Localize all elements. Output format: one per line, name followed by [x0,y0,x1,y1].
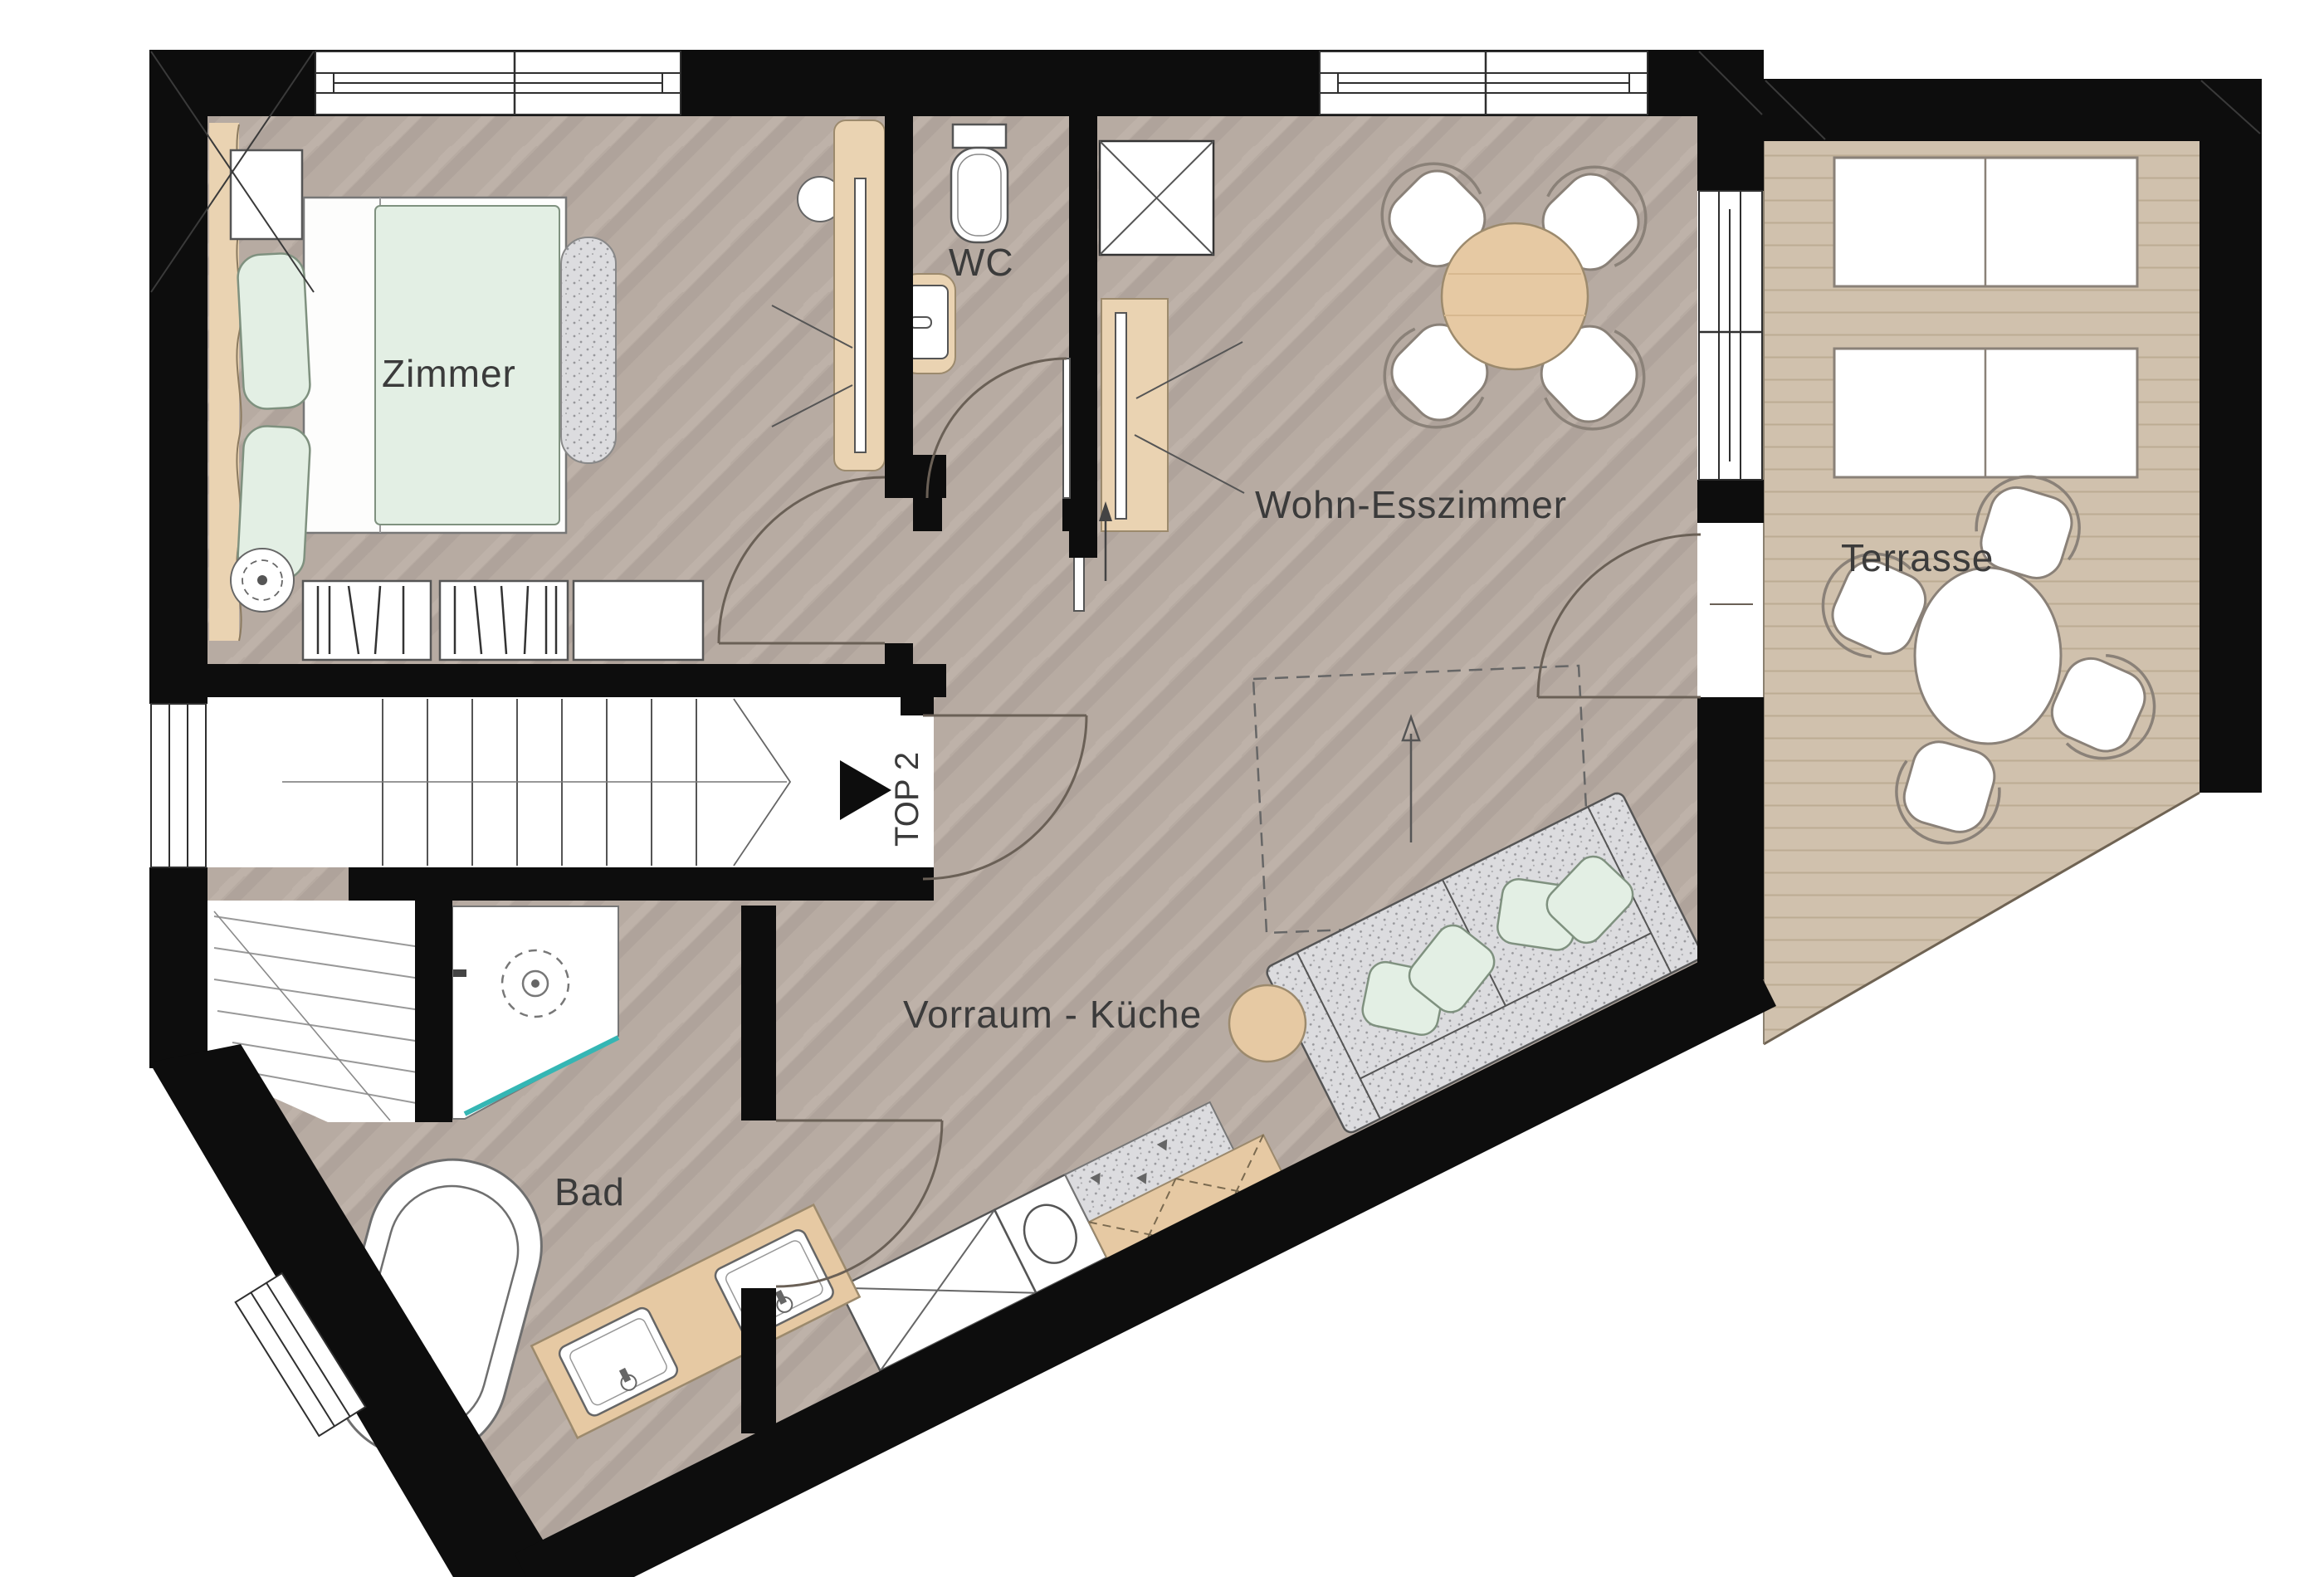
label-terrasse: Terrasse [1841,536,1994,579]
corner-cabinet [231,150,302,239]
tv-panel [1116,313,1126,519]
sun-lounger [1834,158,2137,286]
window-living-top [1320,51,1648,115]
dining-table [1442,223,1588,369]
toilet-cistern [953,124,1006,148]
label-vorraum-kueche: Vorraum - Küche [903,993,1202,1036]
side-table [1229,985,1306,1062]
mirror-panel [855,178,866,452]
sideboard [1101,299,1168,531]
toilet-icon [951,148,1008,242]
shower-valve [453,969,466,977]
label-zimmer: Zimmer [382,352,516,395]
terrace-table [1915,568,2061,744]
sun-lounger [1834,349,2137,477]
window-stair-left [151,704,206,867]
floor-lamp-icon [231,549,294,612]
unit-label: TOP 2 [889,752,925,847]
bed-pillow [237,252,311,410]
window-bedroom-top [315,51,681,115]
floorplan-page: TOP 2 Zimmer WC Wohn-Esszimmer Terrasse … [0,0,2324,1577]
label-wc: WC [949,241,1014,284]
label-wohn-esszimmer: Wohn-Esszimmer [1255,483,1567,526]
bedside-rug [561,237,616,463]
shaft-box [1100,141,1213,255]
floorplan-drawing: TOP 2 Zimmer WC Wohn-Esszimmer Terrasse … [0,0,2324,1577]
label-bad: Bad [554,1170,625,1213]
window-terrace-wall [1699,191,1762,480]
